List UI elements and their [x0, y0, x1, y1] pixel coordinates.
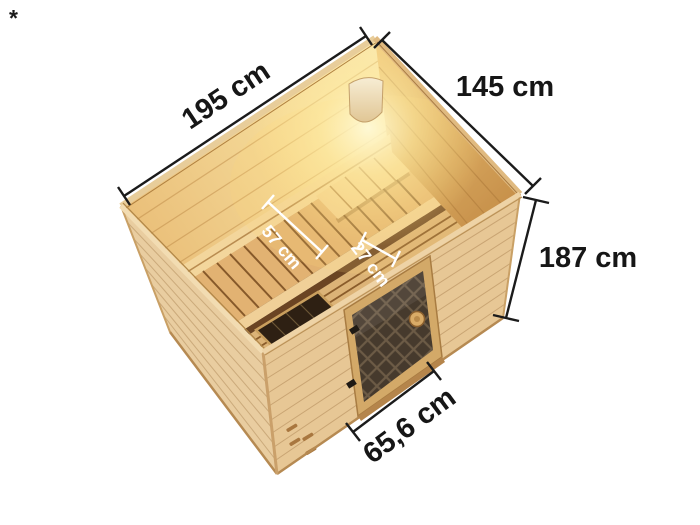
product-image-canvas: 195 cm 145 cm 187 cm 65,6 cm 57 cm 27 cm…	[0, 0, 700, 525]
footnote-asterisk: *	[9, 5, 18, 31]
corner-lamp	[349, 78, 383, 122]
door-handle-center	[414, 316, 420, 322]
dimension-label-wall-height: 187 cm	[539, 242, 637, 274]
sauna-product-render: 195 cm 145 cm 187 cm 65,6 cm 57 cm 27 cm…	[0, 0, 700, 525]
dimension-label-side-wall-width: 145 cm	[456, 71, 554, 103]
